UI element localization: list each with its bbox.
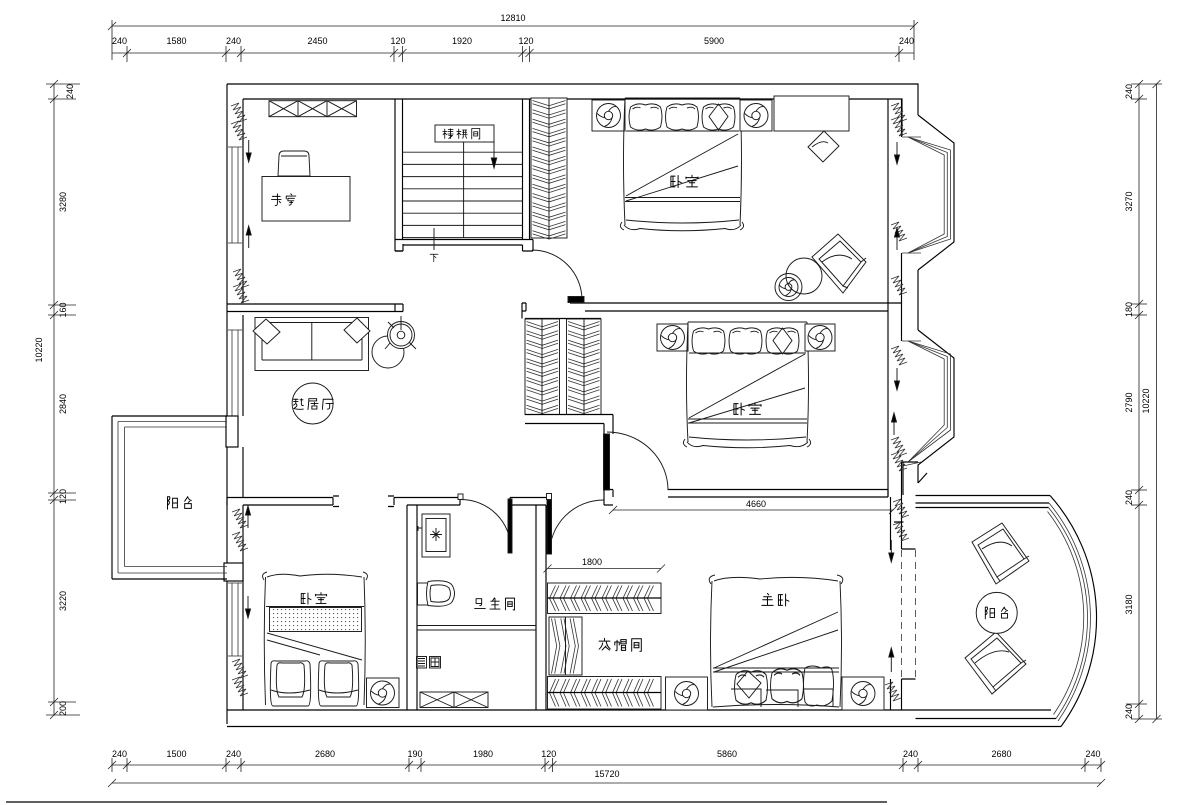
svg-text:2450: 2450 — [307, 36, 327, 46]
svg-text:1580: 1580 — [166, 36, 186, 46]
svg-text:3280: 3280 — [58, 192, 68, 212]
svg-text:160: 160 — [58, 302, 68, 317]
svg-text:1800: 1800 — [582, 557, 602, 567]
svg-text:2680: 2680 — [991, 749, 1011, 759]
svg-text:1500: 1500 — [166, 749, 186, 759]
svg-text:5860: 5860 — [717, 749, 737, 759]
svg-text:1980: 1980 — [473, 749, 493, 759]
svg-text:3220: 3220 — [58, 591, 68, 611]
svg-text:120: 120 — [390, 36, 405, 46]
svg-text:240: 240 — [1124, 84, 1134, 99]
svg-text:240: 240 — [226, 36, 241, 46]
svg-text:120: 120 — [58, 489, 68, 504]
svg-text:240: 240 — [1085, 749, 1100, 759]
svg-text:120: 120 — [518, 36, 533, 46]
svg-text:1920: 1920 — [452, 36, 472, 46]
svg-text:240: 240 — [226, 749, 241, 759]
svg-text:240: 240 — [65, 84, 75, 99]
svg-text:5900: 5900 — [704, 36, 724, 46]
svg-text:10220: 10220 — [1141, 388, 1151, 413]
svg-text:240: 240 — [903, 749, 918, 759]
svg-text:2840: 2840 — [58, 394, 68, 414]
svg-text:200: 200 — [58, 701, 68, 716]
svg-text:15720: 15720 — [594, 769, 619, 779]
svg-text:240: 240 — [1124, 490, 1134, 505]
svg-text:240: 240 — [1124, 704, 1134, 719]
svg-text:4660: 4660 — [746, 499, 766, 509]
svg-text:120: 120 — [541, 749, 556, 759]
svg-text:10220: 10220 — [34, 337, 44, 362]
svg-text:2680: 2680 — [315, 749, 335, 759]
svg-text:12810: 12810 — [500, 13, 525, 23]
svg-text:240: 240 — [112, 36, 127, 46]
svg-text:180: 180 — [1124, 302, 1134, 317]
svg-text:3180: 3180 — [1124, 594, 1134, 614]
svg-text:3270: 3270 — [1124, 191, 1134, 211]
svg-text:2790: 2790 — [1124, 392, 1134, 412]
svg-text:190: 190 — [407, 749, 422, 759]
svg-text:240: 240 — [899, 36, 914, 46]
svg-text:240: 240 — [112, 749, 127, 759]
